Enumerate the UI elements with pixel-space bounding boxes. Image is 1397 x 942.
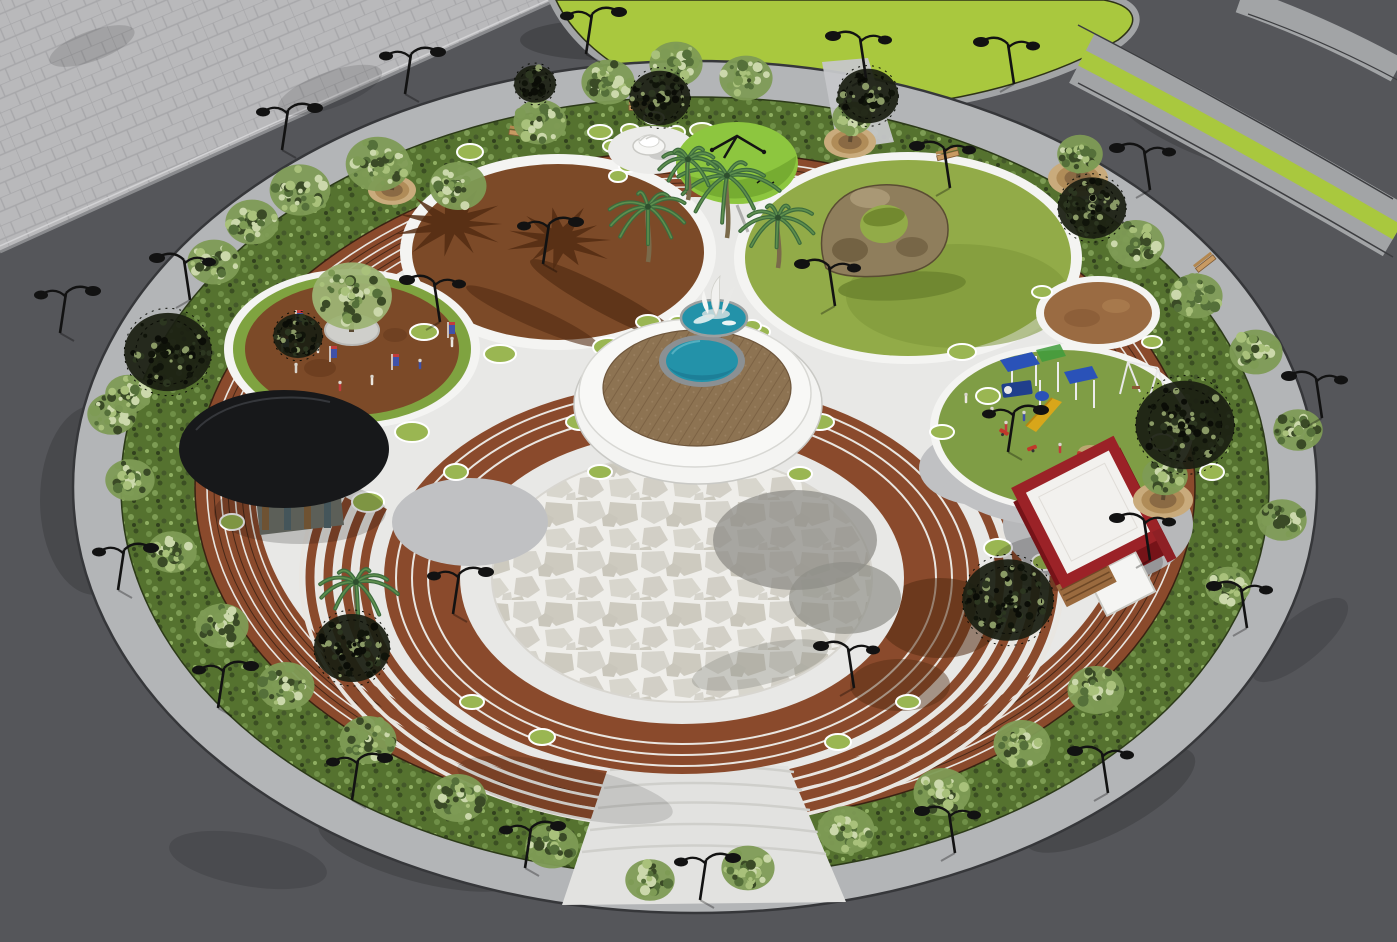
tree [195,604,248,649]
person-figure [1058,443,1061,452]
park-render: Planted road medians Circular park plaza [0,0,1397,942]
lawn-dot [976,388,1000,404]
person-figure [370,375,373,384]
small-brown-circle [1036,276,1160,350]
tree [430,774,487,822]
person-figure [1022,411,1025,420]
lawn-dot [896,695,920,709]
lawn-dot [588,125,612,139]
lawn-dot [930,425,954,439]
lawn-dot [395,422,429,442]
tree [818,806,875,854]
lawn-dot [529,729,555,745]
tree [1273,409,1322,451]
soil-patch [304,359,336,377]
lawn-dot [788,467,812,481]
play-tube [1035,391,1049,401]
soil-patch [383,328,407,342]
tree [1257,499,1306,541]
person-figure [294,363,297,372]
black-canopy-roof [179,390,389,508]
tree [270,164,331,215]
lawn-dot [1200,464,1224,480]
tree [1229,330,1282,375]
lawn-dot [1142,336,1162,348]
tree [430,162,487,210]
tree [105,459,154,501]
person-figure [1004,421,1007,430]
tree [721,846,774,891]
person-figure [450,337,453,346]
tree [719,56,772,101]
tree [257,662,314,710]
tree [513,100,566,145]
person-figure [338,381,341,390]
tree [346,137,411,191]
lawn-dot [460,695,484,709]
tree [625,859,674,901]
tree [994,720,1051,768]
event-tree [312,262,392,329]
tree [1068,666,1125,714]
lawn-dot [588,465,612,479]
lawn-dot [825,734,851,750]
lawn-dot [948,344,976,360]
lawn-dot [457,144,483,160]
lawn-dot [444,464,468,480]
lawn-dot [1032,286,1052,298]
tree-shadow-on-stone [789,562,901,634]
person-figure [964,393,967,402]
person-figure [418,359,421,368]
tree [312,262,392,329]
lawn-dot [484,345,516,363]
